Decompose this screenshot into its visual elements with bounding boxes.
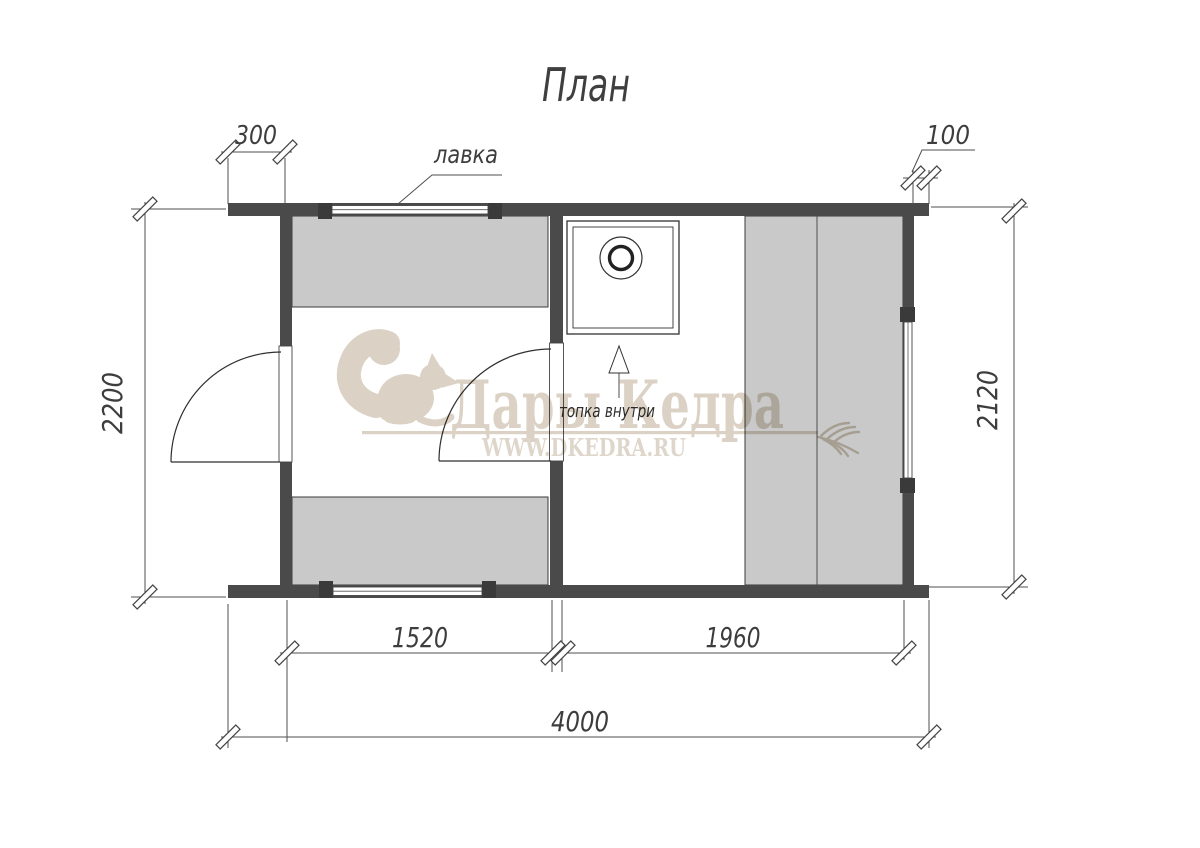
wall-right-lower xyxy=(903,493,914,598)
bench-leader-line xyxy=(398,175,502,204)
wall-interior-upper xyxy=(550,203,563,343)
stove xyxy=(567,221,679,334)
dimension-label-2120: 2120 xyxy=(971,370,1004,430)
plan-title: План xyxy=(542,58,630,112)
strip-jamb xyxy=(319,581,333,598)
steam-room-bottom-bench xyxy=(292,497,548,585)
bench-label: лавка xyxy=(433,140,498,169)
stove-outer-box xyxy=(567,221,679,334)
squirrel-tail-tip xyxy=(368,333,400,365)
dimension-100: 100 xyxy=(901,121,975,204)
door-exterior-left xyxy=(171,346,292,462)
dimension-label-2200: 2200 xyxy=(96,372,129,434)
squirrel-foot xyxy=(385,416,415,425)
dimension-label-4000: 4000 xyxy=(551,705,609,738)
bench-callout: лавка xyxy=(398,140,502,204)
watermark-website-text: WWW.DKEDRA.RU xyxy=(481,433,686,462)
wall-right-upper xyxy=(903,203,914,307)
dimension-2200: 2200 xyxy=(96,197,226,609)
squirrel-front-paw xyxy=(420,417,451,423)
wall-left-upper xyxy=(280,203,292,346)
dimension-label-100: 100 xyxy=(926,121,970,151)
floor-plan-drawing: План xyxy=(0,0,1200,848)
steam-room-top-bench xyxy=(292,216,548,307)
dimension-lines xyxy=(131,202,226,604)
floor-plan-page: План xyxy=(0,0,1200,848)
strip-jamb xyxy=(488,203,502,219)
dimension-4000: 4000 xyxy=(216,600,941,749)
dimension-300: 300 xyxy=(216,121,297,204)
window-jamb xyxy=(900,307,915,322)
window-jamb xyxy=(900,478,915,493)
strip-jamb xyxy=(318,203,332,219)
door-leaf-in-opening xyxy=(279,346,292,462)
strip-jamb xyxy=(482,581,496,598)
dimension-2120: 2120 xyxy=(915,199,1028,599)
door-swing-arc xyxy=(171,352,281,462)
wall-left-lower xyxy=(280,462,292,598)
wall-interior-lower xyxy=(550,461,563,598)
dimension-label-300: 300 xyxy=(235,121,277,151)
squirrel-logo-icon xyxy=(349,333,459,425)
squirrel-ear xyxy=(427,353,440,367)
dimension-label-1520: 1520 xyxy=(392,621,448,654)
dimension-label-1960: 1960 xyxy=(706,621,761,654)
